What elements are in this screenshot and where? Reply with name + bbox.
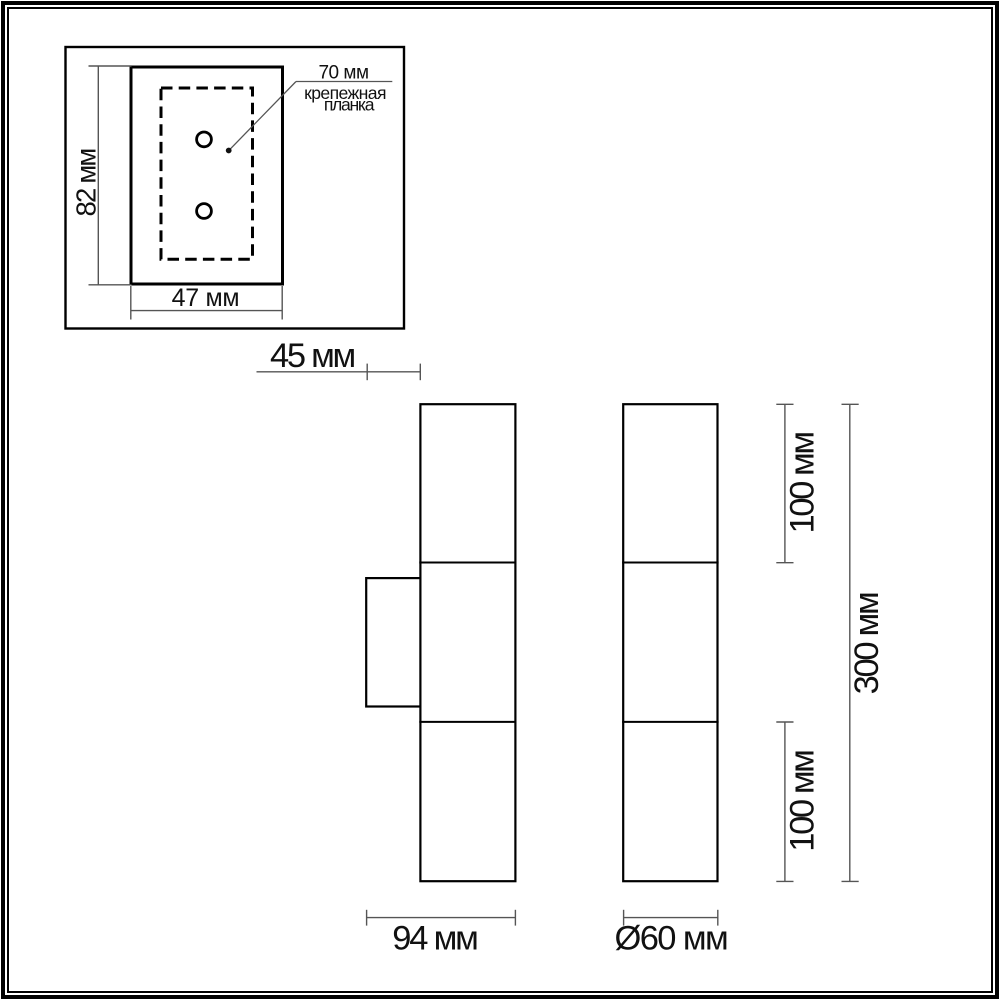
svg-text:Ø60 мм: Ø60 мм bbox=[614, 920, 727, 958]
svg-text:планка: планка bbox=[324, 94, 375, 114]
svg-text:82 мм: 82 мм bbox=[71, 149, 102, 217]
svg-text:70 мм: 70 мм bbox=[318, 63, 368, 84]
svg-text:100 мм: 100 мм bbox=[784, 751, 822, 852]
svg-text:100 мм: 100 мм bbox=[784, 433, 822, 534]
svg-text:45 мм: 45 мм bbox=[270, 337, 354, 375]
svg-text:94 мм: 94 мм bbox=[392, 920, 477, 958]
svg-text:300 мм: 300 мм bbox=[848, 593, 886, 694]
svg-text:47 мм: 47 мм bbox=[172, 284, 240, 312]
